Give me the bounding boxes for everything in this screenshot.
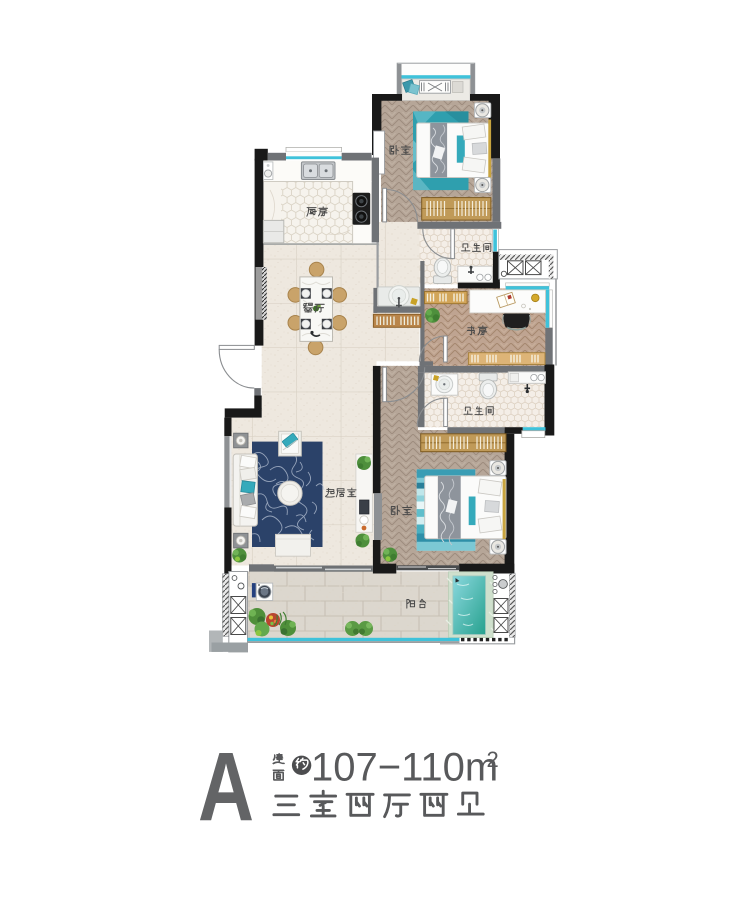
svg-text:2: 2 [487,747,499,772]
svg-text:A: A [198,732,254,841]
svg-text:107−110m: 107−110m [311,746,498,790]
